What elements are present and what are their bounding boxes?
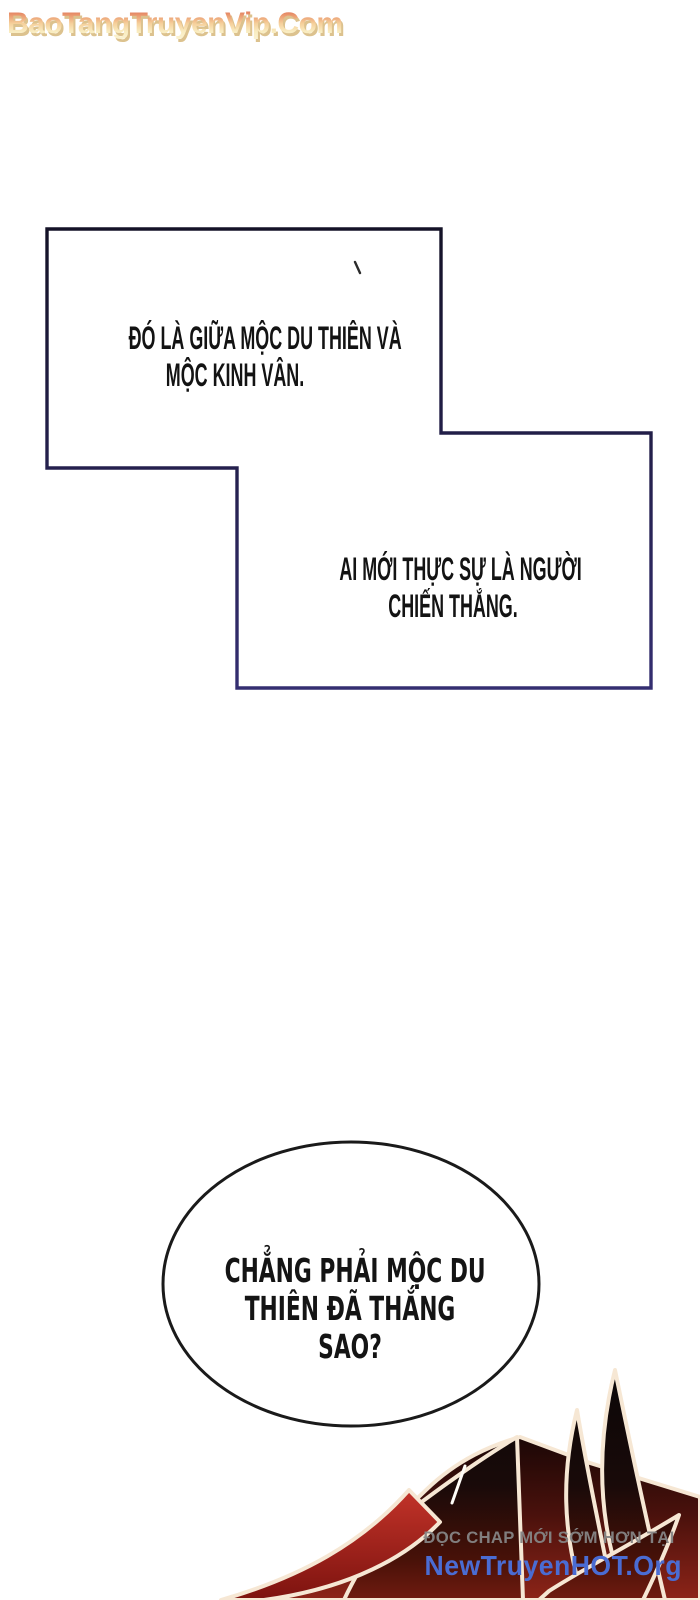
speech-box-1-line-2: MỘC KINH VÂN. — [129, 357, 342, 394]
speech-bubble-line-1: CHẲNG PHẢI MỘC DU — [225, 1252, 476, 1290]
speech-box-1: ĐÓ LÀ GIỮA MỘC DU THIÊN VÀ MỘC KINH VÂN. — [45, 320, 425, 394]
watermark-bottom-tagline: ĐỌC CHAP MỚI SỚM HƠN TẠI — [421, 1528, 678, 1548]
comic-page: BaoTangTruyenVip.Com BaoTangTruyenVip.Co… — [0, 0, 700, 1600]
watermark-bottom-site: NewTruyenHOT.Org — [425, 1550, 674, 1582]
speech-bubble-line-2: THIÊN ĐÃ THẮNG — [225, 1290, 476, 1328]
site-watermark-top: BaoTangTruyenVip.Com — [7, 7, 343, 41]
speech-bubble-line-3: SAO? — [225, 1328, 476, 1366]
site-watermark-bottom: ĐỌC CHAP MỚI SỚM HƠN TẠI NewTruyenHOT.Or… — [418, 1528, 680, 1582]
speech-box-2-line-2: CHIẾN THẮNG. — [339, 588, 566, 625]
speech-bubble: CHẲNG PHẢI MỘC DU THIÊN ĐÃ THẮNG SAO? — [160, 1252, 540, 1366]
speech-box-1-line-1: ĐÓ LÀ GIỮA MỘC DU THIÊN VÀ — [129, 320, 342, 357]
speech-box-2: AI MỚI THỰC SỰ LÀ NGƯỜI CHIẾN THẮNG. — [250, 551, 656, 625]
speech-box-2-line-1: AI MỚI THỰC SỰ LÀ NGƯỜI — [339, 551, 566, 588]
